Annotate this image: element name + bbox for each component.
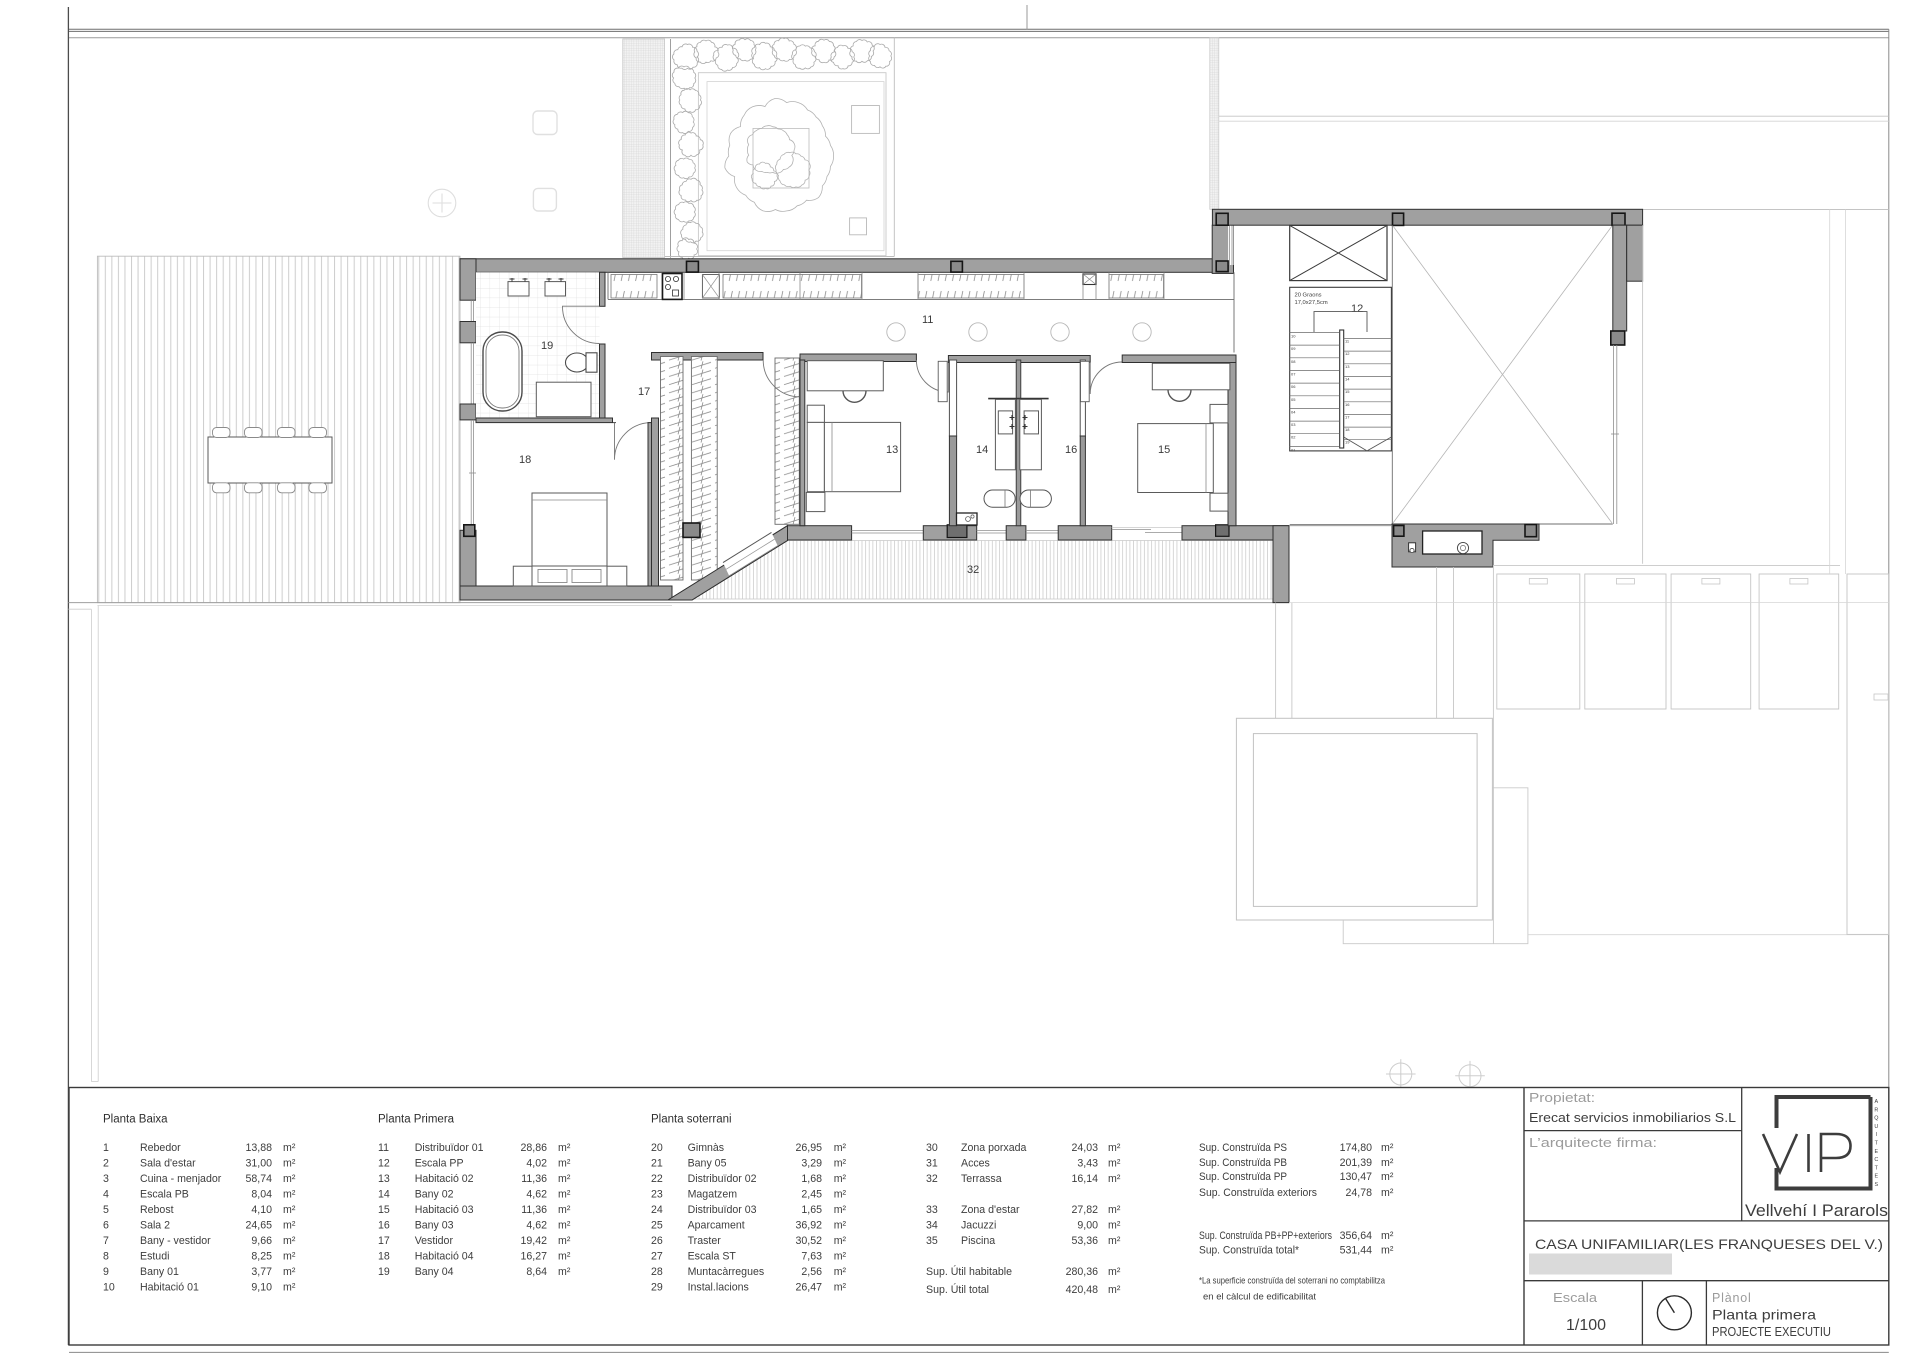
svg-text:6: 6 bbox=[103, 1220, 109, 1232]
svg-text:Magatzem: Magatzem bbox=[688, 1189, 738, 1201]
svg-text:PROJECTE EXECUTIU: PROJECTE EXECUTIU bbox=[1712, 1325, 1831, 1339]
svg-text:4: 4 bbox=[103, 1189, 109, 1201]
svg-text:17: 17 bbox=[638, 386, 650, 398]
svg-text:m²: m² bbox=[283, 1235, 296, 1247]
svg-text:m²: m² bbox=[1381, 1171, 1394, 1183]
svg-text:11,36: 11,36 bbox=[521, 1204, 547, 1216]
svg-text:9,00: 9,00 bbox=[1077, 1220, 1098, 1232]
svg-text:Planta soterrani: Planta soterrani bbox=[651, 1114, 732, 1126]
svg-text:10: 10 bbox=[1291, 334, 1296, 339]
svg-text:09: 09 bbox=[1291, 346, 1296, 351]
svg-text:8,25: 8,25 bbox=[251, 1251, 272, 1263]
svg-text:Sala 2: Sala 2 bbox=[140, 1220, 170, 1232]
svg-text:4,62: 4,62 bbox=[526, 1220, 547, 1232]
svg-text:11: 11 bbox=[378, 1142, 389, 1154]
svg-text:34: 34 bbox=[926, 1220, 938, 1232]
svg-text:m²: m² bbox=[283, 1282, 296, 1294]
svg-text:m²: m² bbox=[283, 1189, 296, 1201]
svg-text:Sup. Construïda exteriors: Sup. Construïda exteriors bbox=[1199, 1187, 1317, 1199]
svg-text:R: R bbox=[1874, 1107, 1878, 1113]
svg-text:Sup. Útil habitable: Sup. Útil habitable bbox=[926, 1265, 1012, 1278]
svg-text:Plànol: Plànol bbox=[1712, 1291, 1752, 1305]
svg-text:7,63: 7,63 bbox=[801, 1251, 822, 1263]
svg-text:14: 14 bbox=[976, 444, 988, 456]
svg-text:m²: m² bbox=[283, 1158, 296, 1170]
svg-text:m²: m² bbox=[1381, 1157, 1394, 1169]
svg-text:Estudi: Estudi bbox=[140, 1251, 169, 1263]
svg-text:14: 14 bbox=[1345, 376, 1350, 381]
svg-text:53,36: 53,36 bbox=[1071, 1235, 1098, 1247]
svg-text:16: 16 bbox=[1065, 444, 1077, 456]
svg-text:1,65: 1,65 bbox=[801, 1204, 822, 1216]
svg-text:26,95: 26,95 bbox=[795, 1142, 822, 1154]
svg-text:Bany 03: Bany 03 bbox=[415, 1220, 454, 1232]
svg-text:28: 28 bbox=[651, 1266, 663, 1278]
svg-text:27: 27 bbox=[651, 1251, 663, 1263]
svg-text:Instal.lacions: Instal.lacions bbox=[688, 1282, 749, 1294]
svg-text:A: A bbox=[1874, 1099, 1878, 1105]
svg-text:06: 06 bbox=[1291, 384, 1296, 389]
svg-text:36,92: 36,92 bbox=[795, 1220, 822, 1232]
svg-text:Cuina - menjador: Cuina - menjador bbox=[140, 1173, 222, 1185]
svg-text:420,48: 420,48 bbox=[1066, 1284, 1099, 1296]
svg-text:Escala PP: Escala PP bbox=[415, 1158, 464, 1170]
svg-text:18: 18 bbox=[378, 1251, 390, 1263]
svg-text:m²: m² bbox=[834, 1204, 847, 1216]
svg-text:m²: m² bbox=[283, 1266, 296, 1278]
svg-text:16,27: 16,27 bbox=[520, 1251, 547, 1263]
svg-text:04: 04 bbox=[1291, 409, 1296, 414]
svg-text:m²: m² bbox=[1108, 1235, 1121, 1247]
svg-text:m²: m² bbox=[1108, 1284, 1121, 1296]
svg-text:m²: m² bbox=[834, 1189, 847, 1201]
svg-text:201,39: 201,39 bbox=[1340, 1157, 1373, 1169]
svg-text:m²: m² bbox=[558, 1189, 571, 1201]
svg-text:Sala d'estar: Sala d'estar bbox=[140, 1158, 196, 1170]
svg-text:Distribuïdor 02: Distribuïdor 02 bbox=[688, 1173, 757, 1185]
svg-text:30: 30 bbox=[926, 1142, 938, 1154]
svg-text:19: 19 bbox=[541, 340, 553, 352]
svg-text:Piscina: Piscina bbox=[961, 1235, 995, 1247]
svg-text:Rebedor: Rebedor bbox=[140, 1142, 181, 1154]
svg-text:L’arquitecte firma:: L’arquitecte firma: bbox=[1529, 1136, 1657, 1150]
svg-text:Jacuzzi: Jacuzzi bbox=[961, 1220, 996, 1232]
svg-text:Sup. Construïda PB+PP+exterior: Sup. Construïda PB+PP+exteriors bbox=[1199, 1230, 1332, 1242]
svg-text:m²: m² bbox=[558, 1266, 571, 1278]
svg-text:08: 08 bbox=[1291, 359, 1296, 364]
svg-text:32: 32 bbox=[967, 564, 979, 576]
svg-text:9,10: 9,10 bbox=[251, 1282, 272, 1294]
svg-text:2,56: 2,56 bbox=[801, 1266, 822, 1278]
svg-text:18: 18 bbox=[1345, 427, 1350, 432]
svg-text:E: E bbox=[1874, 1149, 1878, 1155]
svg-text:3,43: 3,43 bbox=[1077, 1158, 1098, 1170]
svg-text:20 Graons: 20 Graons bbox=[1295, 293, 1322, 299]
svg-text:356,64: 356,64 bbox=[1340, 1230, 1373, 1242]
svg-text:m²: m² bbox=[1108, 1142, 1121, 1154]
svg-text:16,14: 16,14 bbox=[1071, 1173, 1098, 1185]
svg-text:S: S bbox=[1874, 1182, 1878, 1188]
svg-text:Erecat servicios inmobiliarios: Erecat servicios inmobiliarios S.L bbox=[1529, 1110, 1736, 1125]
svg-text:Habitació 03: Habitació 03 bbox=[415, 1204, 474, 1216]
svg-text:m²: m² bbox=[834, 1235, 847, 1247]
svg-text:15: 15 bbox=[1345, 389, 1350, 394]
svg-text:Traster: Traster bbox=[688, 1235, 722, 1247]
svg-text:19,42: 19,42 bbox=[520, 1235, 547, 1247]
svg-text:13,88: 13,88 bbox=[245, 1142, 272, 1154]
svg-text:11,36: 11,36 bbox=[521, 1173, 547, 1185]
svg-text:*La superficie construïda del: *La superficie construïda del soterrani … bbox=[1199, 1276, 1386, 1287]
svg-text:I: I bbox=[1876, 1132, 1878, 1138]
svg-text:m²: m² bbox=[558, 1158, 571, 1170]
svg-text:19: 19 bbox=[378, 1266, 390, 1278]
svg-text:Terrassa: Terrassa bbox=[961, 1173, 1002, 1185]
svg-text:1/100: 1/100 bbox=[1566, 1317, 1606, 1334]
svg-text:7: 7 bbox=[103, 1235, 109, 1247]
svg-text:21: 21 bbox=[651, 1158, 663, 1170]
svg-text:m²: m² bbox=[1381, 1187, 1394, 1199]
svg-text:22: 22 bbox=[651, 1173, 663, 1185]
svg-text:C: C bbox=[1874, 1157, 1878, 1163]
svg-text:Vestidor: Vestidor bbox=[415, 1235, 454, 1247]
svg-text:en el càlcul de edificabilitat: en el càlcul de edificabilitat bbox=[1203, 1292, 1316, 1303]
svg-text:Sup. Útil total: Sup. Útil total bbox=[926, 1283, 989, 1296]
svg-text:Gimnàs: Gimnàs bbox=[688, 1142, 725, 1154]
svg-text:Escala PB: Escala PB bbox=[140, 1189, 189, 1201]
svg-text:m²: m² bbox=[834, 1173, 847, 1185]
svg-text:07: 07 bbox=[1291, 371, 1296, 376]
svg-text:m²: m² bbox=[834, 1220, 847, 1232]
svg-text:130,47: 130,47 bbox=[1340, 1171, 1373, 1183]
svg-text:10: 10 bbox=[103, 1282, 115, 1294]
svg-text:m²: m² bbox=[1381, 1245, 1394, 1257]
svg-text:Bany 04: Bany 04 bbox=[415, 1266, 454, 1278]
svg-text:13: 13 bbox=[378, 1173, 390, 1185]
svg-text:m²: m² bbox=[834, 1251, 847, 1263]
svg-text:Bany 02: Bany 02 bbox=[415, 1189, 454, 1201]
svg-text:2,45: 2,45 bbox=[801, 1189, 822, 1201]
svg-text:19: 19 bbox=[1345, 440, 1350, 445]
svg-text:24,65: 24,65 bbox=[245, 1220, 272, 1232]
svg-text:24: 24 bbox=[651, 1204, 663, 1216]
svg-text:58,74: 58,74 bbox=[245, 1173, 272, 1185]
svg-text:26,47: 26,47 bbox=[795, 1282, 822, 1294]
svg-text:02: 02 bbox=[1291, 435, 1296, 440]
svg-text:05: 05 bbox=[1291, 397, 1296, 402]
svg-text:Vellvehí I Pararols: Vellvehí I Pararols bbox=[1745, 1201, 1888, 1220]
svg-text:15: 15 bbox=[1158, 444, 1170, 456]
svg-text:33: 33 bbox=[926, 1204, 938, 1216]
svg-text:Aparcament: Aparcament bbox=[688, 1220, 745, 1232]
svg-text:27,82: 27,82 bbox=[1071, 1204, 1098, 1216]
svg-text:24,78: 24,78 bbox=[1345, 1187, 1372, 1199]
svg-text:Propietat:: Propietat: bbox=[1529, 1091, 1595, 1105]
svg-text:26: 26 bbox=[651, 1235, 663, 1247]
svg-text:25: 25 bbox=[651, 1220, 663, 1232]
svg-text:174,80: 174,80 bbox=[1340, 1142, 1373, 1154]
svg-text:01: 01 bbox=[1291, 447, 1296, 452]
svg-text:m²: m² bbox=[834, 1266, 847, 1278]
svg-text:Rebost: Rebost bbox=[140, 1204, 174, 1216]
svg-text:17: 17 bbox=[1345, 414, 1350, 419]
svg-text:Habitació 02: Habitació 02 bbox=[415, 1173, 474, 1185]
svg-text:m²: m² bbox=[283, 1173, 296, 1185]
svg-text:32: 32 bbox=[926, 1173, 938, 1185]
svg-text:17,0x27,5cm: 17,0x27,5cm bbox=[1295, 300, 1328, 306]
svg-text:Escala: Escala bbox=[1553, 1291, 1597, 1305]
svg-text:Sup. Construïda PB: Sup. Construïda PB bbox=[1199, 1157, 1287, 1169]
svg-text:m²: m² bbox=[1381, 1230, 1394, 1242]
svg-text:4,02: 4,02 bbox=[526, 1158, 547, 1170]
svg-text:Distribuïdor 01: Distribuïdor 01 bbox=[415, 1142, 484, 1154]
svg-text:m²: m² bbox=[1108, 1173, 1121, 1185]
svg-text:1: 1 bbox=[103, 1142, 109, 1154]
svg-text:Planta primera: Planta primera bbox=[1712, 1307, 1816, 1323]
svg-text:31: 31 bbox=[926, 1158, 938, 1170]
svg-text:20: 20 bbox=[651, 1142, 663, 1154]
svg-text:531,44: 531,44 bbox=[1340, 1245, 1373, 1257]
svg-text:Sup. Construïda total*: Sup. Construïda total* bbox=[1199, 1245, 1299, 1257]
svg-text:m²: m² bbox=[1108, 1158, 1121, 1170]
svg-text:CASA UNIFAMILIAR(LES FRANQUESE: CASA UNIFAMILIAR(LES FRANQUESES DEL V.) bbox=[1535, 1236, 1883, 1252]
svg-text:m²: m² bbox=[834, 1142, 847, 1154]
svg-text:m²: m² bbox=[283, 1142, 296, 1154]
svg-text:Bany 01: Bany 01 bbox=[140, 1266, 179, 1278]
svg-text:m²: m² bbox=[558, 1204, 571, 1216]
svg-text:8: 8 bbox=[103, 1251, 109, 1263]
svg-text:Distribuïdor 03: Distribuïdor 03 bbox=[688, 1204, 757, 1216]
svg-text:Sup. Construïda PP: Sup. Construïda PP bbox=[1199, 1171, 1287, 1183]
svg-text:17: 17 bbox=[378, 1235, 390, 1247]
svg-text:Muntacàrregues: Muntacàrregues bbox=[688, 1266, 765, 1278]
svg-text:m²: m² bbox=[558, 1220, 571, 1232]
svg-text:Bany - vestidor: Bany - vestidor bbox=[140, 1235, 211, 1247]
svg-text:28,86: 28,86 bbox=[520, 1142, 547, 1154]
svg-text:m²: m² bbox=[1108, 1220, 1121, 1232]
svg-text:4,10: 4,10 bbox=[251, 1204, 272, 1216]
svg-text:31,00: 31,00 bbox=[245, 1158, 272, 1170]
svg-text:280,36: 280,36 bbox=[1066, 1266, 1099, 1278]
svg-text:Zona d'estar: Zona d'estar bbox=[961, 1204, 1020, 1216]
svg-text:Acces: Acces bbox=[961, 1158, 990, 1170]
svg-text:Sup. Construïda PS: Sup. Construïda PS bbox=[1199, 1142, 1287, 1154]
svg-text:12: 12 bbox=[378, 1158, 390, 1170]
svg-text:30,52: 30,52 bbox=[795, 1235, 822, 1247]
svg-text:1,68: 1,68 bbox=[801, 1173, 822, 1185]
svg-text:U: U bbox=[1874, 1124, 1878, 1130]
svg-text:24,03: 24,03 bbox=[1071, 1142, 1098, 1154]
svg-text:23: 23 bbox=[651, 1189, 663, 1201]
svg-text:13: 13 bbox=[886, 444, 898, 456]
svg-text:35: 35 bbox=[926, 1235, 938, 1247]
svg-text:m²: m² bbox=[283, 1251, 296, 1263]
svg-text:Bany 05: Bany 05 bbox=[688, 1158, 727, 1170]
svg-text:15: 15 bbox=[378, 1204, 390, 1216]
svg-text:Zona porxada: Zona porxada bbox=[961, 1142, 1026, 1154]
svg-text:Q: Q bbox=[1874, 1116, 1878, 1122]
svg-text:m²: m² bbox=[283, 1204, 296, 1216]
svg-text:12: 12 bbox=[1351, 303, 1363, 315]
svg-text:Habitació 01: Habitació 01 bbox=[140, 1282, 199, 1294]
svg-text:03: 03 bbox=[1291, 422, 1296, 427]
svg-text:12: 12 bbox=[1345, 351, 1350, 356]
svg-text:4,62: 4,62 bbox=[526, 1189, 547, 1201]
svg-text:m²: m² bbox=[558, 1173, 571, 1185]
svg-text:m²: m² bbox=[834, 1158, 847, 1170]
svg-text:9,66: 9,66 bbox=[251, 1235, 272, 1247]
svg-text:m²: m² bbox=[558, 1235, 571, 1247]
svg-text:m²: m² bbox=[834, 1282, 847, 1294]
svg-text:m²: m² bbox=[1108, 1204, 1121, 1216]
svg-text:14: 14 bbox=[378, 1189, 390, 1201]
svg-text:8,04: 8,04 bbox=[251, 1189, 272, 1201]
svg-text:Escala ST: Escala ST bbox=[688, 1251, 737, 1263]
svg-text:3: 3 bbox=[103, 1173, 109, 1185]
svg-text:8,64: 8,64 bbox=[526, 1266, 547, 1278]
svg-text:m²: m² bbox=[558, 1142, 571, 1154]
svg-text:16: 16 bbox=[1345, 402, 1350, 407]
svg-text:m²: m² bbox=[283, 1220, 296, 1232]
svg-text:9: 9 bbox=[103, 1266, 109, 1278]
svg-text:3,29: 3,29 bbox=[801, 1158, 822, 1170]
svg-text:E: E bbox=[1874, 1174, 1878, 1180]
svg-text:m²: m² bbox=[1108, 1266, 1121, 1278]
svg-text:3,77: 3,77 bbox=[251, 1266, 272, 1278]
svg-text:Planta Primera: Planta Primera bbox=[378, 1114, 455, 1126]
svg-text:m²: m² bbox=[558, 1251, 571, 1263]
svg-text:m²: m² bbox=[1381, 1142, 1394, 1154]
svg-text:16: 16 bbox=[378, 1220, 390, 1232]
svg-text:Planta Baixa: Planta Baixa bbox=[103, 1114, 168, 1126]
svg-text:11: 11 bbox=[922, 314, 933, 326]
svg-text:Habitació 04: Habitació 04 bbox=[415, 1251, 474, 1263]
svg-text:18: 18 bbox=[519, 454, 531, 466]
svg-text:2: 2 bbox=[103, 1158, 109, 1170]
svg-text:5: 5 bbox=[103, 1204, 109, 1216]
svg-text:13: 13 bbox=[1345, 364, 1350, 369]
svg-text:29: 29 bbox=[651, 1282, 663, 1294]
